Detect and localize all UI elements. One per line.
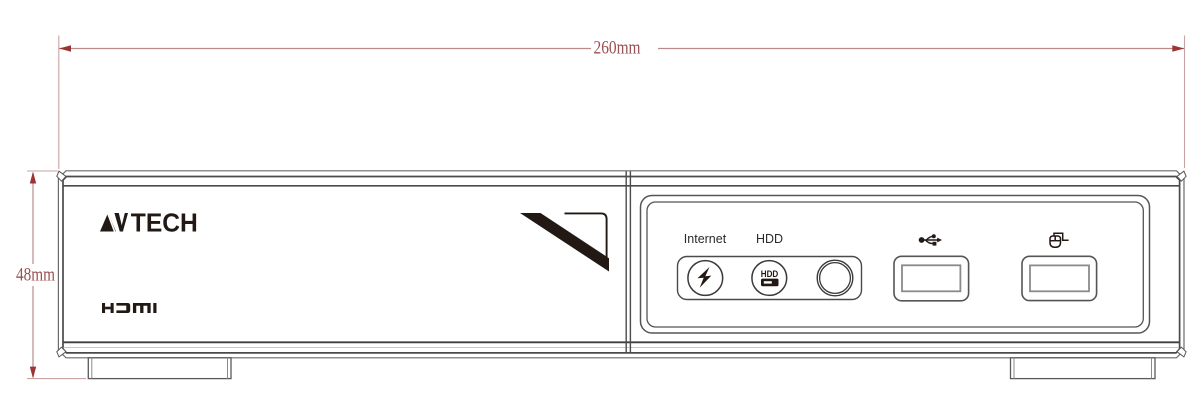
svg-text:48mm: 48mm [16, 265, 55, 286]
svg-text:HDD: HDD [756, 232, 783, 246]
svg-text:Internet: Internet [684, 232, 727, 246]
svg-text:260mm: 260mm [594, 38, 641, 59]
svg-text:TECH: TECH [131, 210, 198, 238]
svg-text:HDD: HDD [761, 269, 779, 279]
